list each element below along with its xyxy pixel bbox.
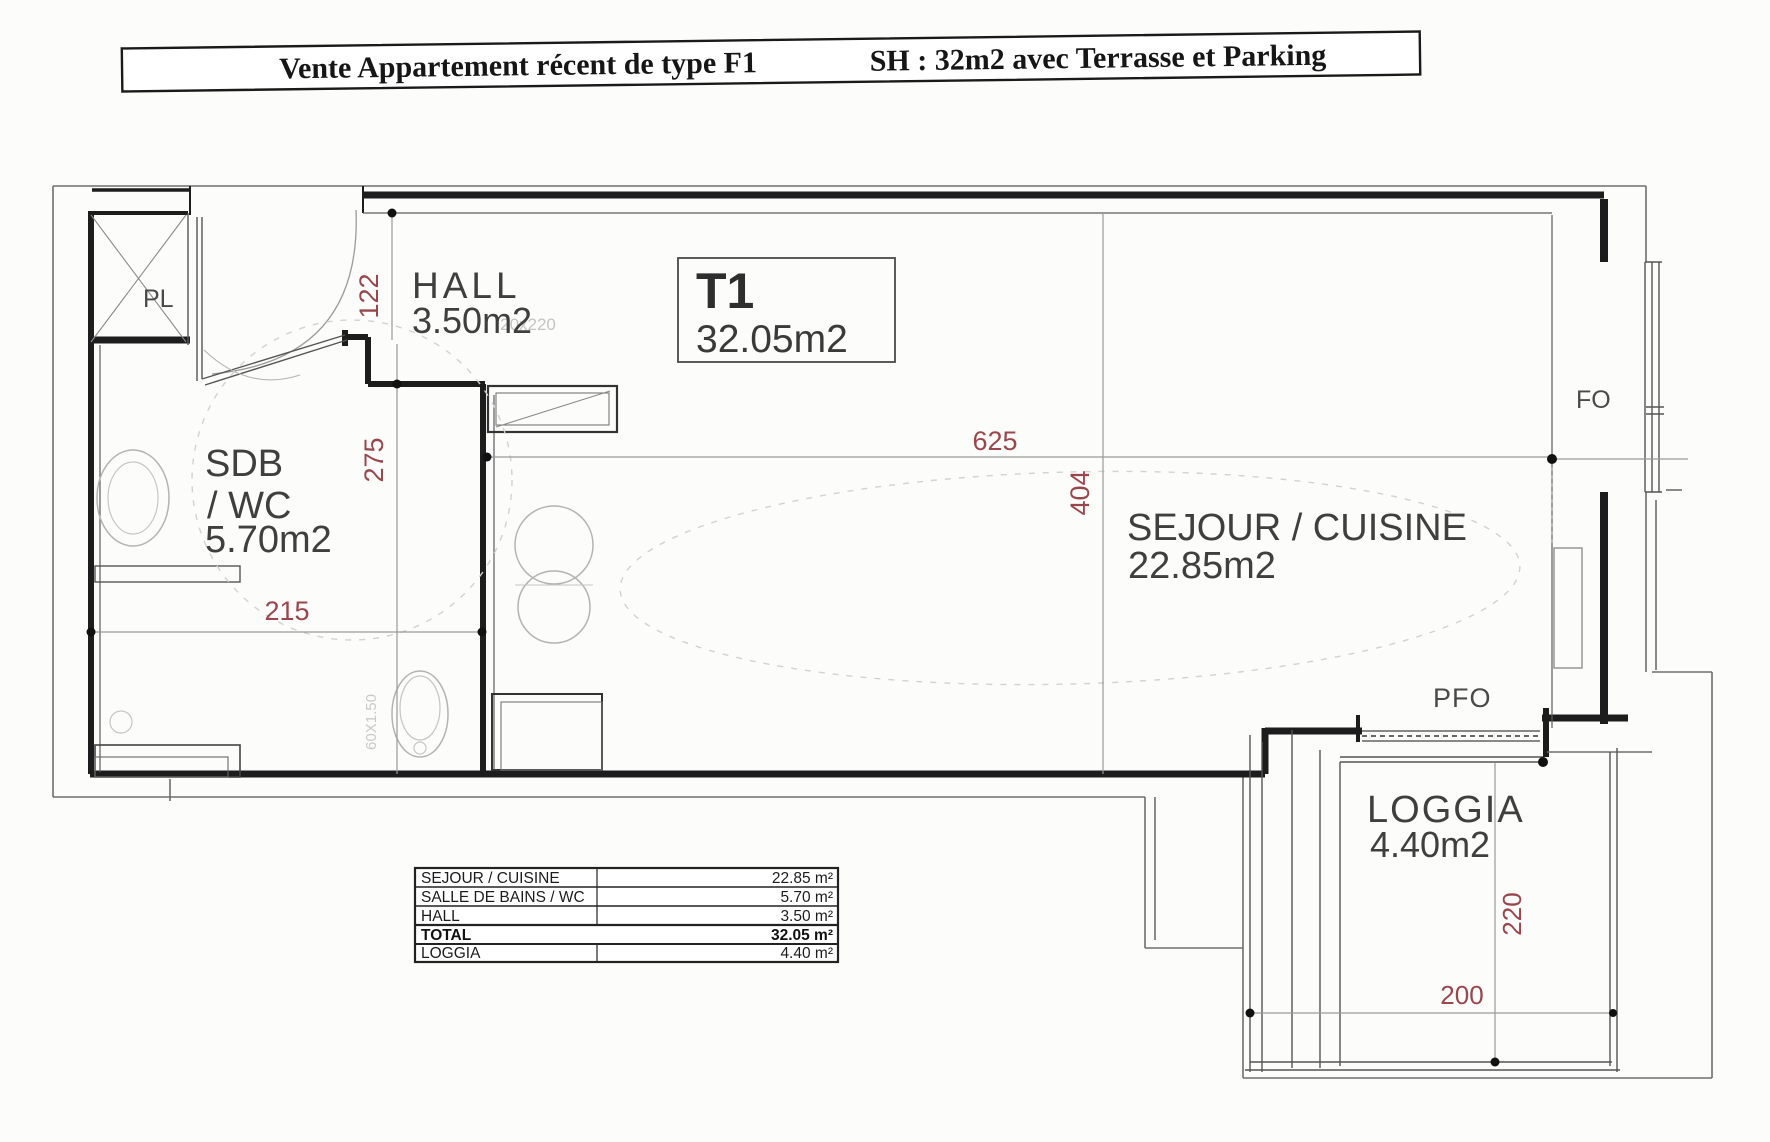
svg-text:22.85 m²: 22.85 m²	[772, 870, 833, 887]
room-label-living: SEJOUR / CUISINE 22.85m2	[1127, 507, 1467, 587]
loggia-area: 4.40m2	[1370, 824, 1490, 865]
dim-bath-depth: 275	[359, 437, 389, 482]
wc-dim-label: 60X1.50	[363, 694, 380, 750]
kitchen-sink	[515, 506, 593, 643]
areas-table: SEJOUR / CUISINE 22.85 m² SALLE DE BAINS…	[415, 868, 838, 962]
room-label-loggia: LOGGIA 4.40m2	[1367, 789, 1525, 865]
dim-living-width: 625	[972, 426, 1017, 456]
unit-area: 32.05m2	[696, 318, 848, 361]
door-swing-arc	[212, 210, 356, 374]
svg-text:5.70 m²: 5.70 m²	[780, 889, 833, 906]
living-name: SEJOUR / CUISINE	[1127, 507, 1467, 549]
walls-layer	[88, 186, 1628, 774]
svg-text:SALLE DE BAINS / WC: SALLE DE BAINS / WC	[421, 889, 585, 906]
svg-text:HALL: HALL	[421, 908, 460, 925]
floor-plan-drawing: Vente Appartement récent de type F1 SH :…	[0, 0, 1770, 1142]
patio-door-label: PFO	[1433, 683, 1492, 713]
page-title-part1: Vente Appartement récent de type F1	[279, 46, 757, 85]
kitchen-unit-right	[1554, 548, 1582, 668]
washbasin	[97, 450, 169, 546]
closet-pl: PL	[91, 213, 188, 345]
unit-type: T1	[696, 263, 754, 319]
dimension-lines	[87, 209, 1689, 1067]
room-label-bathroom: SDB / WC 5.70m2	[205, 443, 332, 561]
dim-hall-depth: 122	[354, 273, 384, 318]
dim-living-depth: 404	[1065, 470, 1095, 515]
dim-loggia-depth: 220	[1497, 892, 1527, 935]
loggia-walls	[1245, 730, 1652, 1072]
bathroom-name-line1: SDB	[205, 443, 283, 485]
svg-text:3.50 m²: 3.50 m²	[780, 908, 833, 925]
unit-label-box: T1 32.05m2	[678, 258, 895, 362]
svg-text:SEJOUR / CUISINE: SEJOUR / CUISINE	[421, 870, 560, 887]
dim-loggia-width: 200	[1440, 980, 1483, 1010]
dim-bath-width: 215	[264, 596, 309, 626]
room-label-hall: HALL 3.50m2	[412, 265, 532, 341]
living-area: 22.85m2	[1128, 545, 1276, 587]
svg-text:4.40 m²: 4.40 m²	[780, 945, 833, 962]
svg-text:LOGGIA: LOGGIA	[421, 945, 481, 962]
toilet: 60X1.50	[363, 671, 448, 757]
window-fo: FO	[1576, 262, 1664, 492]
patio-door-pfo: PFO	[1362, 683, 1540, 741]
title-banner: Vente Appartement récent de type F1 SH :…	[122, 31, 1420, 91]
closet-label: PL	[143, 285, 174, 313]
kitchen-counter	[492, 694, 602, 770]
bathroom-shelves	[95, 566, 240, 777]
svg-text:TOTAL: TOTAL	[421, 927, 471, 944]
floor-plan-page: Vente Appartement récent de type F1 SH :…	[0, 0, 1770, 1142]
wall-face-lines	[100, 213, 1552, 772]
svg-text:32.05 m²: 32.05 m²	[771, 927, 833, 944]
hall-area: 3.50m2	[412, 300, 532, 341]
closet-cross-lines	[91, 215, 186, 342]
page-title-part2: SH : 32m2 avec Terrasse et Parking	[870, 39, 1327, 78]
window-fo-label: FO	[1576, 386, 1611, 414]
bathroom-area: 5.70m2	[205, 519, 332, 561]
